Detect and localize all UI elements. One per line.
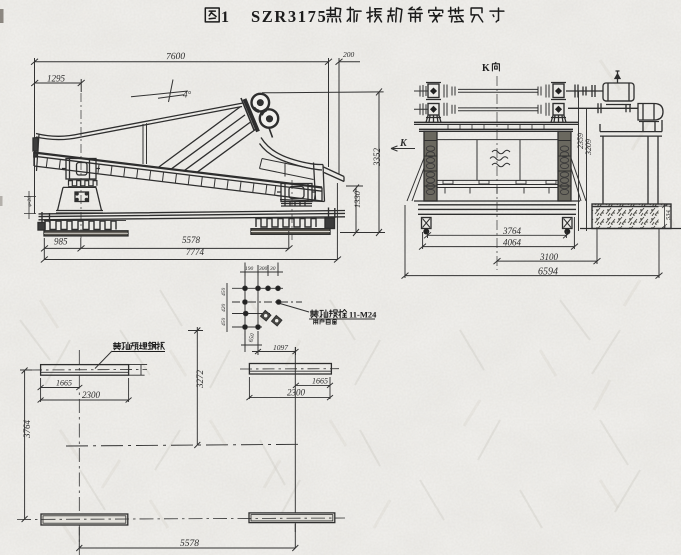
- svg-text:534: 534: [665, 210, 672, 221]
- svg-text:300: 300: [258, 266, 268, 272]
- svg-text:450: 450: [220, 318, 227, 327]
- svg-text:985: 985: [54, 237, 68, 247]
- svg-text:1295: 1295: [47, 74, 66, 84]
- svg-text:3764: 3764: [502, 226, 522, 236]
- svg-text:450: 450: [220, 288, 227, 297]
- svg-text:φ-20: φ-20: [27, 196, 33, 207]
- svg-text:4°: 4°: [183, 90, 192, 100]
- svg-text:SZR3175: SZR3175: [251, 7, 327, 26]
- svg-text:5578: 5578: [180, 539, 199, 549]
- svg-text:1097: 1097: [273, 343, 288, 352]
- svg-text:30: 30: [269, 266, 276, 272]
- svg-text:7774: 7774: [186, 247, 205, 257]
- svg-text:11-M24: 11-M24: [349, 310, 377, 320]
- svg-text:420: 420: [220, 304, 227, 313]
- svg-text:3764: 3764: [22, 420, 32, 440]
- svg-text:6594: 6594: [538, 267, 558, 278]
- svg-text:1: 1: [221, 9, 229, 26]
- svg-text:200: 200: [343, 50, 355, 59]
- svg-text:2300: 2300: [82, 390, 101, 400]
- svg-text:3272: 3272: [195, 370, 205, 390]
- svg-text:2300: 2300: [287, 388, 306, 398]
- svg-text:K: K: [482, 63, 490, 74]
- svg-text:3100: 3100: [539, 252, 559, 262]
- svg-text:4064: 4064: [503, 237, 522, 247]
- svg-text:1665: 1665: [56, 379, 72, 388]
- svg-text:190: 190: [245, 266, 254, 272]
- svg-text:3352: 3352: [372, 148, 382, 168]
- svg-text:5578: 5578: [182, 235, 201, 245]
- svg-text:7600: 7600: [166, 52, 185, 62]
- svg-text:K: K: [399, 138, 408, 149]
- svg-text:3209: 3209: [584, 139, 593, 156]
- svg-text:1330: 1330: [352, 190, 362, 208]
- svg-text:1665: 1665: [312, 376, 328, 385]
